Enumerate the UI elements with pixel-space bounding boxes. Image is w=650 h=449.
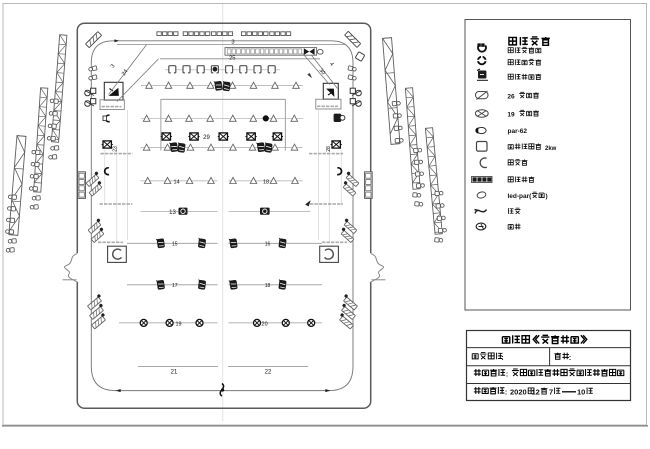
svg-text:2020: 2020 <box>510 388 527 397</box>
svg-text::: : <box>505 389 507 396</box>
svg-text:2kw: 2kw <box>545 146 557 152</box>
svg-text:7: 7 <box>549 388 553 397</box>
svg-text:13: 13 <box>169 210 176 216</box>
svg-text::: : <box>506 372 508 379</box>
svg-text:18: 18 <box>263 179 269 185</box>
svg-text:12: 12 <box>532 388 540 397</box>
svg-text:25: 25 <box>229 56 235 62</box>
svg-text:26: 26 <box>507 93 515 100</box>
svg-text:21: 21 <box>171 370 178 376</box>
svg-text:14: 14 <box>173 179 179 185</box>
svg-text:22: 22 <box>265 370 272 376</box>
svg-text:28: 28 <box>326 146 332 152</box>
svg-text:16: 16 <box>265 242 271 248</box>
svg-text:3: 3 <box>231 40 234 46</box>
svg-text:15: 15 <box>172 242 178 248</box>
svg-text:10: 10 <box>577 388 585 397</box>
svg-text:led-par(: led-par( <box>508 193 533 200</box>
svg-text:19: 19 <box>175 321 181 327</box>
svg-text:par-62: par-62 <box>508 128 528 135</box>
svg-text:29: 29 <box>203 135 210 141</box>
svg-text:18: 18 <box>265 283 271 289</box>
svg-text:19: 19 <box>507 111 515 118</box>
svg-text:): ) <box>546 193 548 200</box>
svg-text::: : <box>501 355 503 362</box>
svg-text:23: 23 <box>113 146 119 152</box>
svg-text:17: 17 <box>172 283 178 289</box>
svg-text::: : <box>569 355 571 362</box>
svg-text:20: 20 <box>262 321 268 327</box>
